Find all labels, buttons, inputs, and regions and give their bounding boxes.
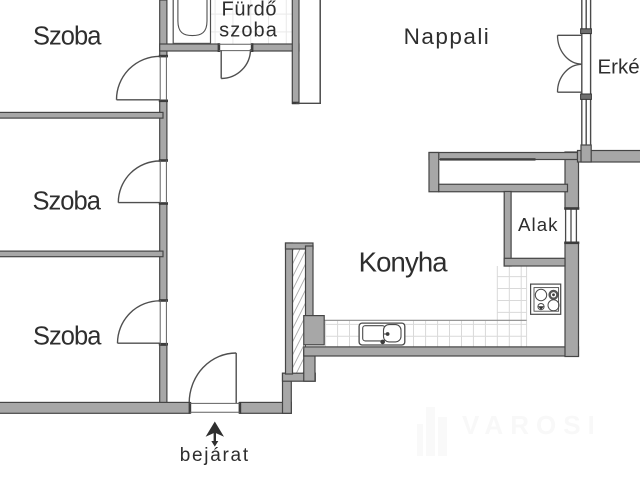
svg-text:szoba: szoba [219,20,278,42]
svg-text:VAROSI: VAROSI [462,410,602,440]
svg-text:bejárat: bejárat [180,445,249,466]
svg-text:Alak: Alak [518,214,558,235]
svg-text:Fürdő: Fürdő [222,0,277,20]
svg-text:Szoba: Szoba [33,23,102,51]
svg-text:Erkély: Erkély [598,56,640,79]
svg-text:Szoba: Szoba [33,188,102,216]
svg-text:Szoba: Szoba [33,323,102,351]
svg-text:Konyha: Konyha [359,247,449,278]
